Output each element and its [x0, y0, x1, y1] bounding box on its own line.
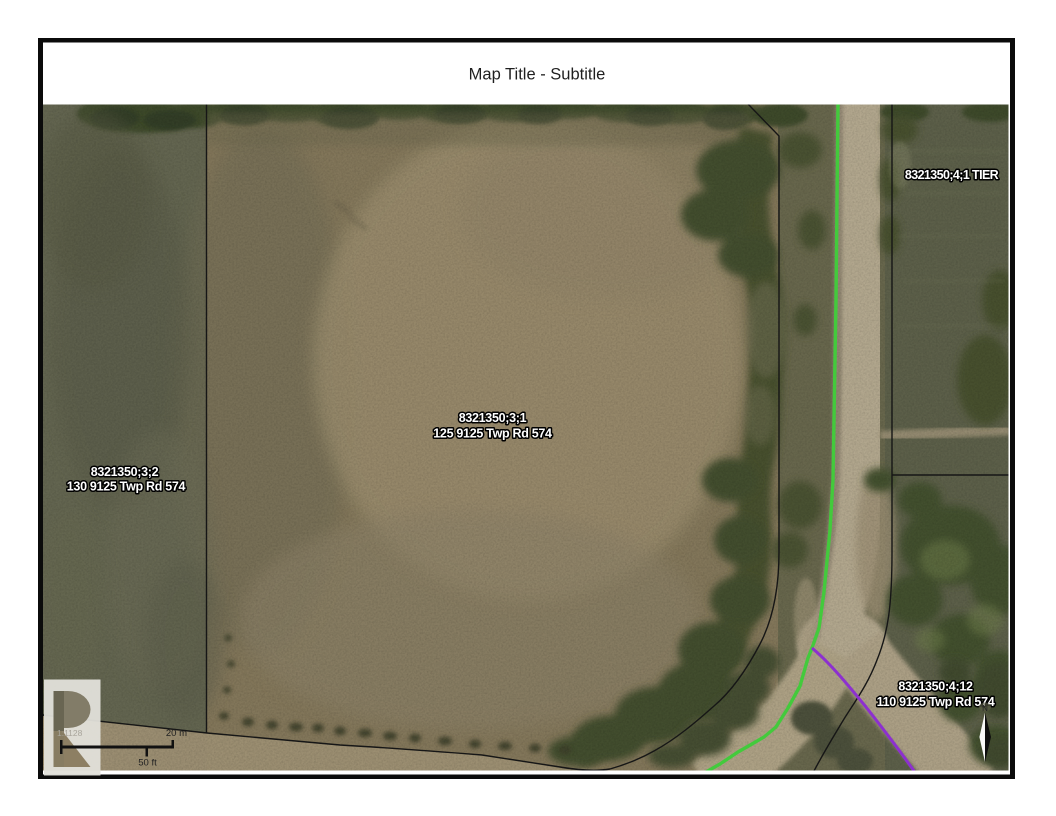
svg-text:1:1128: 1:1128 — [57, 728, 83, 738]
svg-text:8321350;3;1: 8321350;3;1 — [459, 411, 527, 425]
svg-text:8321350;4;12: 8321350;4;12 — [898, 680, 973, 694]
svg-text:20 m: 20 m — [166, 728, 187, 739]
svg-text:130 9125 Twp Rd 574: 130 9125 Twp Rd 574 — [67, 480, 186, 494]
svg-text:N: N — [982, 704, 988, 713]
svg-text:110 9125 Twp Rd 574: 110 9125 Twp Rd 574 — [877, 695, 995, 709]
svg-text:8321350;4;1 TIER: 8321350;4;1 TIER — [905, 168, 999, 182]
svg-text:125 9125 Twp Rd 574: 125 9125 Twp Rd 574 — [433, 427, 552, 441]
svg-text:50 ft: 50 ft — [138, 758, 157, 769]
svg-text:8321350;3;2: 8321350;3;2 — [91, 465, 159, 479]
svg-text:Map Title - Subtitle: Map Title - Subtitle — [469, 66, 606, 84]
